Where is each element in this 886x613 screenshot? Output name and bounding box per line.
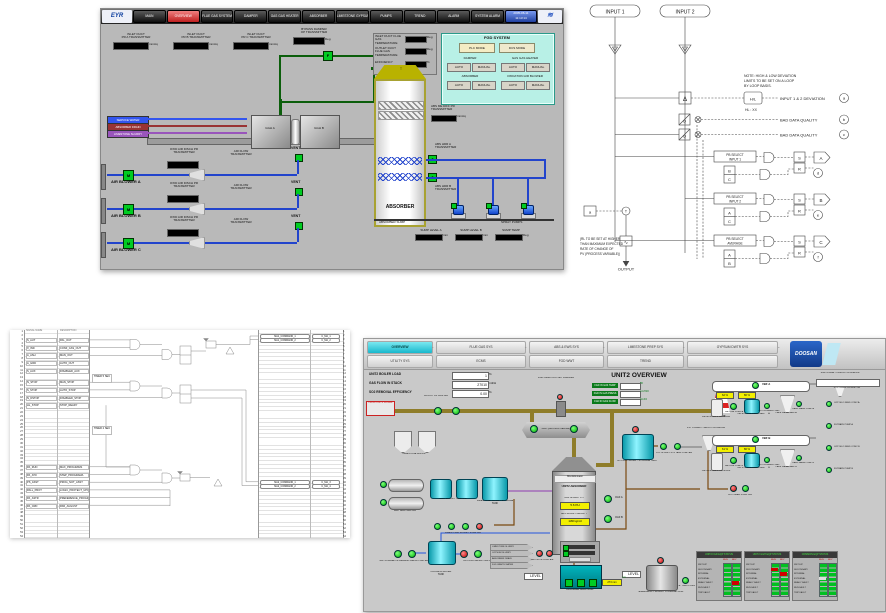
limestone-slurry-tank — [482, 477, 508, 501]
nav-trend-button[interactable]: TREND — [404, 10, 437, 23]
ggh-motor-a[interactable] — [530, 425, 538, 433]
badq1-label: BAD DATA QUALITY — [780, 118, 818, 123]
wwt-pump-b[interactable] — [546, 550, 553, 557]
gyp-pump-a[interactable] — [660, 443, 667, 450]
arrow-limestone: LIMESTONE SLURRY — [490, 544, 533, 551]
cake-wash-pump-a-label: CAKE WASH PUMP A — [792, 408, 814, 411]
vbf-b-belt — [712, 435, 810, 446]
oxblower-auto-button[interactable]: AUTO — [501, 81, 525, 90]
sig-cell: A_GRD — [26, 361, 57, 366]
limestone-slurry-tank-label: LIMESTONE SLURRY STORAGE TANK — [476, 500, 514, 506]
sump-level-value: 273 mm — [602, 579, 622, 586]
sel3-out: C — [819, 240, 823, 245]
inlet-temp-value — [405, 36, 427, 43]
nav-overview-button[interactable]: OVERVIEW — [167, 10, 200, 23]
arrow-gypsum: GYPSUM SLURRY — [490, 550, 533, 557]
left-table-divider — [57, 330, 58, 538]
vbf-b-motor[interactable] — [752, 436, 759, 443]
vbf-a-value1: 62 % — [716, 392, 734, 399]
status-cells-rdy — [828, 563, 837, 597]
rate-symbol: ∿ — [624, 240, 628, 246]
sel1-pair1: B — [728, 169, 731, 174]
sel1-line1: PB SELECT — [726, 153, 744, 157]
ggh-a-box[interactable] — [251, 115, 291, 149]
right-col-label-4: FILTRATE PUMP B — [834, 468, 882, 471]
absorber-area-sump-label: ABSORBER AREA SUMP — [554, 589, 606, 592]
damper-group-title: DAMPER — [445, 57, 495, 60]
ls-pump-1[interactable] — [434, 523, 441, 530]
right-col-pump-1[interactable] — [826, 401, 832, 407]
right-col-label-3: GYP SILO FEED CONV B — [834, 446, 882, 449]
buf-a-fan[interactable] — [434, 407, 442, 415]
inlet-pr-c-value — [233, 42, 269, 50]
desc-cell: DISABLED_AUX — [59, 369, 89, 374]
sel1-pair2: C — [728, 177, 731, 182]
absorber-manual-button[interactable]: MANUAL — [472, 81, 496, 90]
inlet-pr-a-label: INLET DUCTPR A TRANSMITTER — [109, 33, 163, 40]
qual1-letter: Q — [683, 119, 686, 124]
sig-cell: PA_CRD — [26, 504, 57, 509]
wall-anchor-b — [101, 198, 106, 224]
ggh-manual-button[interactable]: MANUAL — [526, 63, 550, 72]
ggh-b-box[interactable] — [300, 115, 340, 149]
sig-cell: PA_RUN — [26, 465, 57, 470]
vbf-b-value2: 80 % — [738, 446, 756, 453]
sump-level-a-label: SUMP LEVEL A — [413, 229, 449, 232]
gypsum-slurry-tank — [622, 434, 654, 460]
vbf-a-value2: 80 % — [738, 392, 756, 399]
service-water-pipe — [147, 118, 247, 120]
sel1-line2: INPUT 1 — [729, 157, 741, 161]
sig-cell: A_ASH — [26, 353, 57, 358]
nav-pumps-button[interactable]: PUMPS — [370, 10, 403, 23]
ggh-motor-b[interactable] — [570, 425, 578, 433]
gas-flow2-value — [620, 399, 641, 406]
sig-cell: X_IND — [26, 346, 57, 351]
right-signal-table — [258, 330, 344, 538]
nav-absorber-button[interactable]: ABSORBER — [302, 10, 335, 23]
outlet-temp-value — [405, 48, 427, 55]
sig-cell: S_STOP — [26, 388, 57, 393]
mist-eliminator-band-2 — [378, 111, 424, 120]
desc-cell: STOP_READY — [59, 403, 89, 408]
sig-cell: HL_STOP — [26, 403, 57, 408]
sig-cell: S_AUT — [26, 338, 57, 343]
gas-temp-label: FGD IN GAS TEMP — [592, 383, 618, 388]
sump-pump-1[interactable] — [565, 579, 573, 587]
desc-cell: CONF_CAS_OUT — [59, 346, 89, 351]
sump-temp-value — [495, 234, 523, 241]
absorber-group-title: ABSORBER — [445, 75, 495, 78]
status-col-rdy: RDY — [732, 559, 737, 562]
hydro2-label: 2ND STAGE HYDROCYCLONE A/B — [810, 372, 870, 375]
oxblower-manual-button[interactable]: MANUAL — [526, 81, 550, 90]
inlet-pr-c-unit: mmAq — [269, 43, 278, 46]
wwt-pump-label: WWT BSTR PUMP A/B — [526, 559, 558, 562]
hmi-nav-bar: EYR MAIN OVERVIEW FLUE GAS SYSTEM DAMPER… — [101, 9, 563, 24]
blower-a-rx-label: AIR FLOWTRANSMITTER — [221, 150, 261, 157]
right-col-label-2: FILTRATE PUMP A — [834, 424, 882, 427]
gyp-feed-pump-a[interactable] — [730, 485, 737, 492]
gyp-pump-label: GYP SLURRY STG TANK PUMP A/B — [654, 452, 694, 455]
sel2-fb: e — [817, 213, 820, 218]
oaf-a-pump[interactable] — [604, 495, 612, 503]
sel3-pair2: B — [728, 261, 731, 266]
blower-a-tx-value — [167, 161, 199, 169]
qual2-letter: Q — [683, 134, 686, 139]
oxblower-group-title: OXIDATION AIR BLOWER — [499, 75, 551, 78]
signal-logic-sheet: 1 2 3 4 5 6 7 8 9 10 11 12 13 14 15 16 1… — [10, 330, 350, 538]
right-sig-pill: C_MA_2 — [312, 338, 340, 343]
fgd-damper-body — [556, 401, 566, 417]
vbf-a-name: VBF A — [762, 383, 770, 386]
blower-c-tx-label: OXID AIR DISCH PRTRANSMITTER — [161, 216, 207, 223]
vbf-a-motor[interactable] — [752, 382, 759, 389]
sel1-r: R — [798, 167, 801, 172]
right-row-numbers: 1 2 3 4 5 6 7 8 9 10 11 12 13 14 15 16 1… — [343, 330, 349, 538]
etank-agitator[interactable] — [657, 557, 664, 564]
sel2-s: S — [798, 198, 801, 203]
blower-c-name: AIR BLOWER C — [111, 248, 141, 253]
cloth-wash-pump-a[interactable] — [764, 403, 770, 409]
sump-pump-2[interactable] — [577, 579, 585, 587]
right-table-divider — [310, 330, 311, 538]
ls-pump-2[interactable] — [448, 523, 455, 530]
me-wash-pump-a[interactable] — [394, 550, 402, 558]
desc-cell: PAL_OUT — [59, 338, 89, 343]
spray-pump-a-status — [451, 203, 457, 209]
gyp-feed-pump-b[interactable] — [742, 485, 749, 492]
cake-wash-pump-b[interactable] — [796, 455, 802, 461]
hdr-b-label: ABS HDR B TRANSMITTER — [435, 185, 469, 192]
ggh-a-label: GGH A — [251, 127, 289, 130]
fgd-hmi-screen: EYR MAIN OVERVIEW FLUE GAS SYSTEM DAMPER… — [100, 8, 564, 270]
pump-riser-3 — [527, 179, 529, 205]
heat-exchanger-cylinder — [291, 119, 300, 145]
absorber-area-sump — [560, 565, 602, 589]
sel3-line1: PB SELECT — [726, 237, 744, 241]
sump-level-b-label: SUMP LEVEL B — [453, 229, 489, 232]
damper-auto-button[interactable]: AUTO — [447, 63, 471, 72]
oaf-b-pump[interactable] — [604, 515, 612, 523]
badq2-label: BAD DATA QUALITY — [780, 133, 818, 138]
control-logic-diagram: INPUT 1 INPUT 2 Δ H/L a Q Q b c a T ∿ OU… — [578, 3, 878, 271]
abs-ph-label: ABS SLURRY PH — [554, 497, 594, 500]
sump-pump-3[interactable] — [589, 579, 597, 587]
sig-cell: PS_ASST — [26, 480, 57, 485]
buf-label: BOOST UP FAN A/B — [412, 395, 460, 398]
note-line1: NOTE: HIGH & LOW DEVIATION — [744, 74, 797, 78]
vbf-a-receiver — [711, 399, 723, 417]
spray-pump-b-status — [486, 203, 492, 209]
sel1-fb: d — [817, 171, 819, 176]
outlet-temp-unit: Deg — [427, 48, 433, 51]
status-col-rdy: RDY — [780, 559, 785, 562]
limestone-pipe — [147, 132, 247, 134]
blower-a-silencer-icon — [189, 169, 205, 181]
me-diffpr-unit: mmAq — [457, 115, 466, 118]
note2-line2: THAN MAXIMUM EXPECTED — [580, 242, 624, 246]
delta-symbol: Δ — [683, 97, 687, 103]
status-cells-run — [723, 563, 732, 597]
etank-level-unit: mm — [622, 577, 626, 580]
efficiency-unit: % — [427, 61, 430, 64]
me-diffpr-value — [431, 115, 457, 122]
mill-a-motor[interactable] — [380, 481, 387, 488]
vbf-a-receiver-label: VBF A FILTRATE RECEIVER — [701, 416, 731, 419]
vbf-b-receiver — [711, 453, 723, 471]
status-red-cell — [732, 581, 739, 584]
dcs-mode-button[interactable]: DCS MODE — [499, 43, 535, 53]
from-boiler-tag: FROM UNIT2 BOILER — [366, 401, 395, 416]
blower-b-rx-label: AIR FLOWTRANSMITTER — [221, 184, 261, 191]
desc-cell: MAN_OUT — [59, 353, 89, 358]
sump-level-a-value — [415, 234, 443, 241]
right-col-pump-3[interactable] — [826, 445, 832, 451]
ls-pump-3[interactable] — [462, 523, 469, 530]
deviation-label: INPUT 1 & 2 DEVIATION — [780, 96, 825, 101]
inlet-pr-c-label: INLET DUCTPR C TRANSMITTER — [229, 33, 283, 40]
nav-main-button[interactable]: MAIN — [133, 10, 166, 23]
bypass-damper-status-indicator[interactable]: F — [323, 51, 333, 61]
gyp-agitator-status[interactable] — [632, 426, 639, 433]
bypass-damper-label: BYPASS DAMPEROP TRANSMITTER — [287, 28, 341, 35]
vacuum-pump-b[interactable] — [730, 457, 737, 464]
status-col-run: RUN — [819, 559, 824, 562]
inlet-pr-a-value — [113, 42, 149, 50]
sel2-line2: INPUT 2 — [729, 199, 741, 203]
sel2-pair1: A — [728, 211, 731, 216]
absorber-sump-label: ABSORBER SUMP — [379, 221, 405, 224]
right-col-label-1: GYP SILO FEED CONV A — [834, 402, 882, 405]
pump-riser-2 — [492, 179, 494, 205]
inlet-pr-b-value — [173, 42, 209, 50]
vent-a-label: VENT — [291, 146, 300, 150]
status-red-cell — [771, 568, 778, 571]
sig-cell: PA_ASTR — [26, 496, 57, 501]
timer-annotation-1: TIMER 5 SEC — [92, 374, 112, 383]
etank-pump[interactable] — [682, 577, 689, 584]
ball-mill-label: WET BALL MILL A/B — [384, 510, 426, 513]
status-cells-rdy — [732, 563, 741, 597]
fgd-panel-title: FGD SYSTEM — [441, 36, 553, 41]
sel2-pair2: C — [728, 219, 731, 224]
right-col-pump-2[interactable] — [826, 423, 832, 429]
desc-cell: MAN_STOP — [59, 380, 89, 385]
absorber-label: ABSORBER — [374, 205, 426, 211]
gas-flow-arrow-icon: ↑ — [396, 67, 406, 73]
desc-cell: AUTO_OUT — [59, 361, 89, 366]
me-wash-pump-label: MIST ELIMINATOR WASHING WATER PUMP A/B — [376, 560, 432, 563]
buf-b-fan[interactable] — [452, 407, 460, 415]
status-white-cell — [819, 577, 826, 580]
nav-alarm-button[interactable]: ALARM — [437, 10, 470, 23]
note-line3: BY LOOP BASIS. — [744, 84, 772, 88]
sig-cell: PALL_PROT — [26, 488, 57, 493]
clock-time: 11:13:14 — [506, 16, 536, 21]
desc-cell: MAX_PROGRAMS — [59, 465, 89, 470]
nav-fluegas-button[interactable]: FLUE GAS SYSTEM — [201, 10, 234, 23]
absorber-auto-button[interactable]: AUTO — [447, 81, 471, 90]
sump-temp-unit: Deg — [523, 234, 529, 237]
cake-wash-pump-a[interactable] — [796, 401, 802, 407]
me-wash-pump-b[interactable] — [408, 550, 416, 558]
header-end-pipe — [544, 159, 546, 179]
desc-cell: PREFERENCE_PROGRAMA — [59, 496, 89, 501]
mill-slurry-tank-a — [430, 479, 452, 499]
gas-temp-value — [620, 383, 641, 390]
gyp-conveyor-label: GYP CAKE CONVEYOR — [816, 387, 878, 390]
cake-wash-tank-a-label: CAKE WASH TANK A — [772, 412, 800, 415]
input2-label: INPUT 2 — [675, 10, 694, 16]
nav-limestone-button[interactable]: LIMESTONE GYPSUM — [336, 10, 369, 23]
collage-canvas: EYR MAIN OVERVIEW FLUE GAS SYSTEM DAMPER… — [0, 0, 886, 613]
sel3-line2: AVERAGE — [727, 241, 742, 245]
hilo-label: H/L — [750, 97, 757, 102]
blower-b-tx-value — [167, 195, 199, 203]
blower-a-name: AIR BLOWER A — [111, 180, 141, 185]
blower-c-tx-value — [167, 229, 199, 237]
vent-c-label: VENT — [291, 214, 300, 218]
sig-cell: S_AUX — [26, 369, 57, 374]
sump-level-display: LEVEL — [524, 573, 543, 580]
gas-flow2-unit: Nm3/h — [640, 399, 647, 402]
fgd-damper-label: FGD INLET/OUTLET DAMPER — [534, 377, 578, 380]
damper-manual-button[interactable]: MANUAL — [472, 63, 496, 72]
spray-pump-c-status — [521, 203, 527, 209]
right-sig-pill: C_MA_4 — [312, 484, 340, 489]
dev-circle-letter: a — [843, 96, 846, 101]
abs-density-value: 1180 kg/m3 — [560, 518, 590, 526]
spray-level-1 — [378, 157, 422, 165]
gas-temp-unit: ℃ — [640, 383, 643, 386]
wall-anchor-c — [101, 232, 106, 258]
oaf-a-label: OAF A — [615, 497, 623, 500]
arrow-wastewater: FGD WASTE WATER — [490, 562, 533, 569]
vent-b-label: VENT — [291, 180, 300, 184]
efficiency-label: EFFICIENCY — [375, 61, 403, 64]
inlet-temp-label: INLET DUCT FLUE GAS TEMPERATURE — [375, 35, 403, 45]
vacuum-pump-a[interactable] — [730, 403, 737, 410]
hydro1-label: 1ST STAGE HYDROCYCLONE A/B — [680, 427, 732, 430]
ls-pump-4[interactable] — [476, 523, 483, 530]
vbf-b-name: VBF B — [762, 437, 770, 440]
sel2-out: B — [819, 198, 822, 203]
bypass-damper-unit: Deg — [325, 38, 331, 41]
vendor-logo: EYR — [102, 10, 132, 23]
sel3-s: S — [798, 240, 801, 245]
spray-pumps-label: SPRAY PUMPS — [501, 221, 522, 224]
sig-cell: PA_ATO — [26, 473, 57, 478]
status-cells-rdy — [780, 563, 789, 597]
note-line2: LIMITS TO BE SET ON A LOOP — [744, 79, 795, 83]
mist-eliminator-band: Mist Eliminator — [554, 475, 596, 483]
note2-line4: PV (PROCESS VARIABLE)) — [580, 252, 620, 256]
ls-pump-label: LIMESTONE SLURRY PUMP A/B — [428, 532, 498, 535]
wwt-pump-a[interactable] — [536, 550, 543, 557]
me-diffpr-label: ABS ME DIFF PRTRANSMITTER — [431, 105, 465, 112]
inlet-temp-unit: Deg — [427, 36, 433, 39]
status-table-3: COMMON EQP STATUS RUN RDY WET E/P SECOND… — [792, 551, 838, 601]
absorber2-name: UNIT2 ABSORBER — [552, 485, 596, 488]
vbf-b-value1: 61 % — [716, 446, 734, 453]
blower-c-rx-label: AIR FLOWTRANSMITTER — [221, 218, 261, 225]
nav-ggh-button[interactable]: GAS GAS HEATER — [268, 10, 301, 23]
inlet-pr-b-unit: mmAq — [209, 43, 218, 46]
plc-mode-button[interactable]: PLC MODE — [459, 43, 495, 53]
sel3-pair1: A — [728, 253, 731, 258]
sig-cell: N_DSTOP — [26, 396, 57, 401]
blower-a-tx-label: OXID AIR DISCH PRTRANSMITTER — [161, 148, 207, 155]
status-row-labels: WET E/P SECONDARY INTERNAL EXTERNAL READ… — [698, 563, 713, 595]
mill-b-motor[interactable] — [380, 499, 387, 506]
pump-riser-1 — [457, 179, 459, 205]
gas-press-unit: mmH2O — [640, 391, 649, 394]
timer-annotation-2: TIMER 2 SEC — [92, 426, 112, 435]
desc-cell: PAR_AUGUST — [59, 504, 89, 509]
status-table-3-title: COMMON EQP STATUS — [793, 552, 837, 558]
status-table-1: UNIT2 FGD EQP STATUS RUN RDY WET E/P SEC… — [696, 551, 742, 601]
status-table-1-title: UNIT2 FGD EQP STATUS — [697, 552, 741, 558]
left-row-numbers: 1 2 3 4 5 6 7 8 9 10 11 12 13 14 15 16 1… — [14, 330, 23, 538]
ggh-group-title: GAS GAS HEATER — [499, 57, 551, 60]
status-table-2-title: UNIT2 GGH EQP STATUS — [745, 552, 789, 558]
sel3-r: R — [798, 251, 801, 256]
transfer-letter: T — [625, 210, 628, 214]
mill-slurry-tank-label: MILL SLURRY TANK A/B — [426, 498, 480, 501]
ball-mill-b — [388, 497, 424, 510]
abs-ph-value: 5.6 PH — [560, 502, 590, 510]
blower-b-silencer-icon — [189, 203, 205, 215]
ggh-auto-button[interactable]: AUTO — [501, 63, 525, 72]
logic-diagram-svg: INPUT 1 INPUT 2 Δ H/L a Q Q b c a T ∿ OU… — [578, 3, 878, 271]
ggh-b-label: GGH B — [300, 127, 338, 130]
status-red-cell — [780, 572, 787, 575]
cake-wash-tank-b-label: CAKE WASH TANK B — [772, 466, 800, 469]
right-col-pump-4[interactable] — [826, 467, 832, 473]
process-water-pump-b[interactable] — [474, 550, 482, 558]
gas-press-value — [620, 391, 641, 398]
sel3-fb: f — [817, 255, 819, 260]
desc-cell: DISABLED_STOP — [59, 396, 89, 401]
seq-bar — [569, 545, 595, 549]
wall-anchor-a — [101, 164, 106, 190]
spray-level-2 — [378, 173, 422, 181]
sequence-status-panel — [560, 541, 600, 563]
process-water-pump-a[interactable] — [460, 550, 468, 558]
abs-density-label: ABS SLURRY DENSITY — [554, 513, 594, 516]
fgd-damper-status[interactable] — [557, 394, 563, 400]
hl-setting: HL : XX — [745, 108, 758, 112]
cake-wash-pump-b-label: CAKE WASH PUMP B — [792, 462, 814, 465]
badq1-letter: b — [843, 117, 846, 122]
status-col-rdy: RDY — [828, 559, 833, 562]
emergency-tank-label: EMERGENCY SLURRY STORAGE TANK — [638, 591, 684, 594]
right-desc-pill: MA1_COMMAND_2 — [260, 338, 310, 343]
nav-sysalarm-button[interactable]: SYSTEM ALARM — [471, 10, 504, 23]
note2-line3: RATE OF CHANGE OF — [580, 247, 613, 251]
cloth-wash-pump-b[interactable] — [764, 457, 770, 463]
nav-damper-button[interactable]: DAMPER — [234, 10, 267, 23]
gyp-feed-pump-label: GYP FEED PUMP A/B — [722, 494, 758, 497]
mill-slurry-tank-b — [456, 479, 478, 499]
oaf-b-label: OAF B — [615, 517, 623, 520]
seq-bar — [569, 551, 595, 555]
gyp-pump-b[interactable] — [674, 443, 681, 450]
gyp-conveyor — [816, 379, 880, 387]
sel1-out: A — [819, 156, 822, 161]
note2-line1: (RL TO BE SET AT HIGHER — [580, 237, 621, 241]
